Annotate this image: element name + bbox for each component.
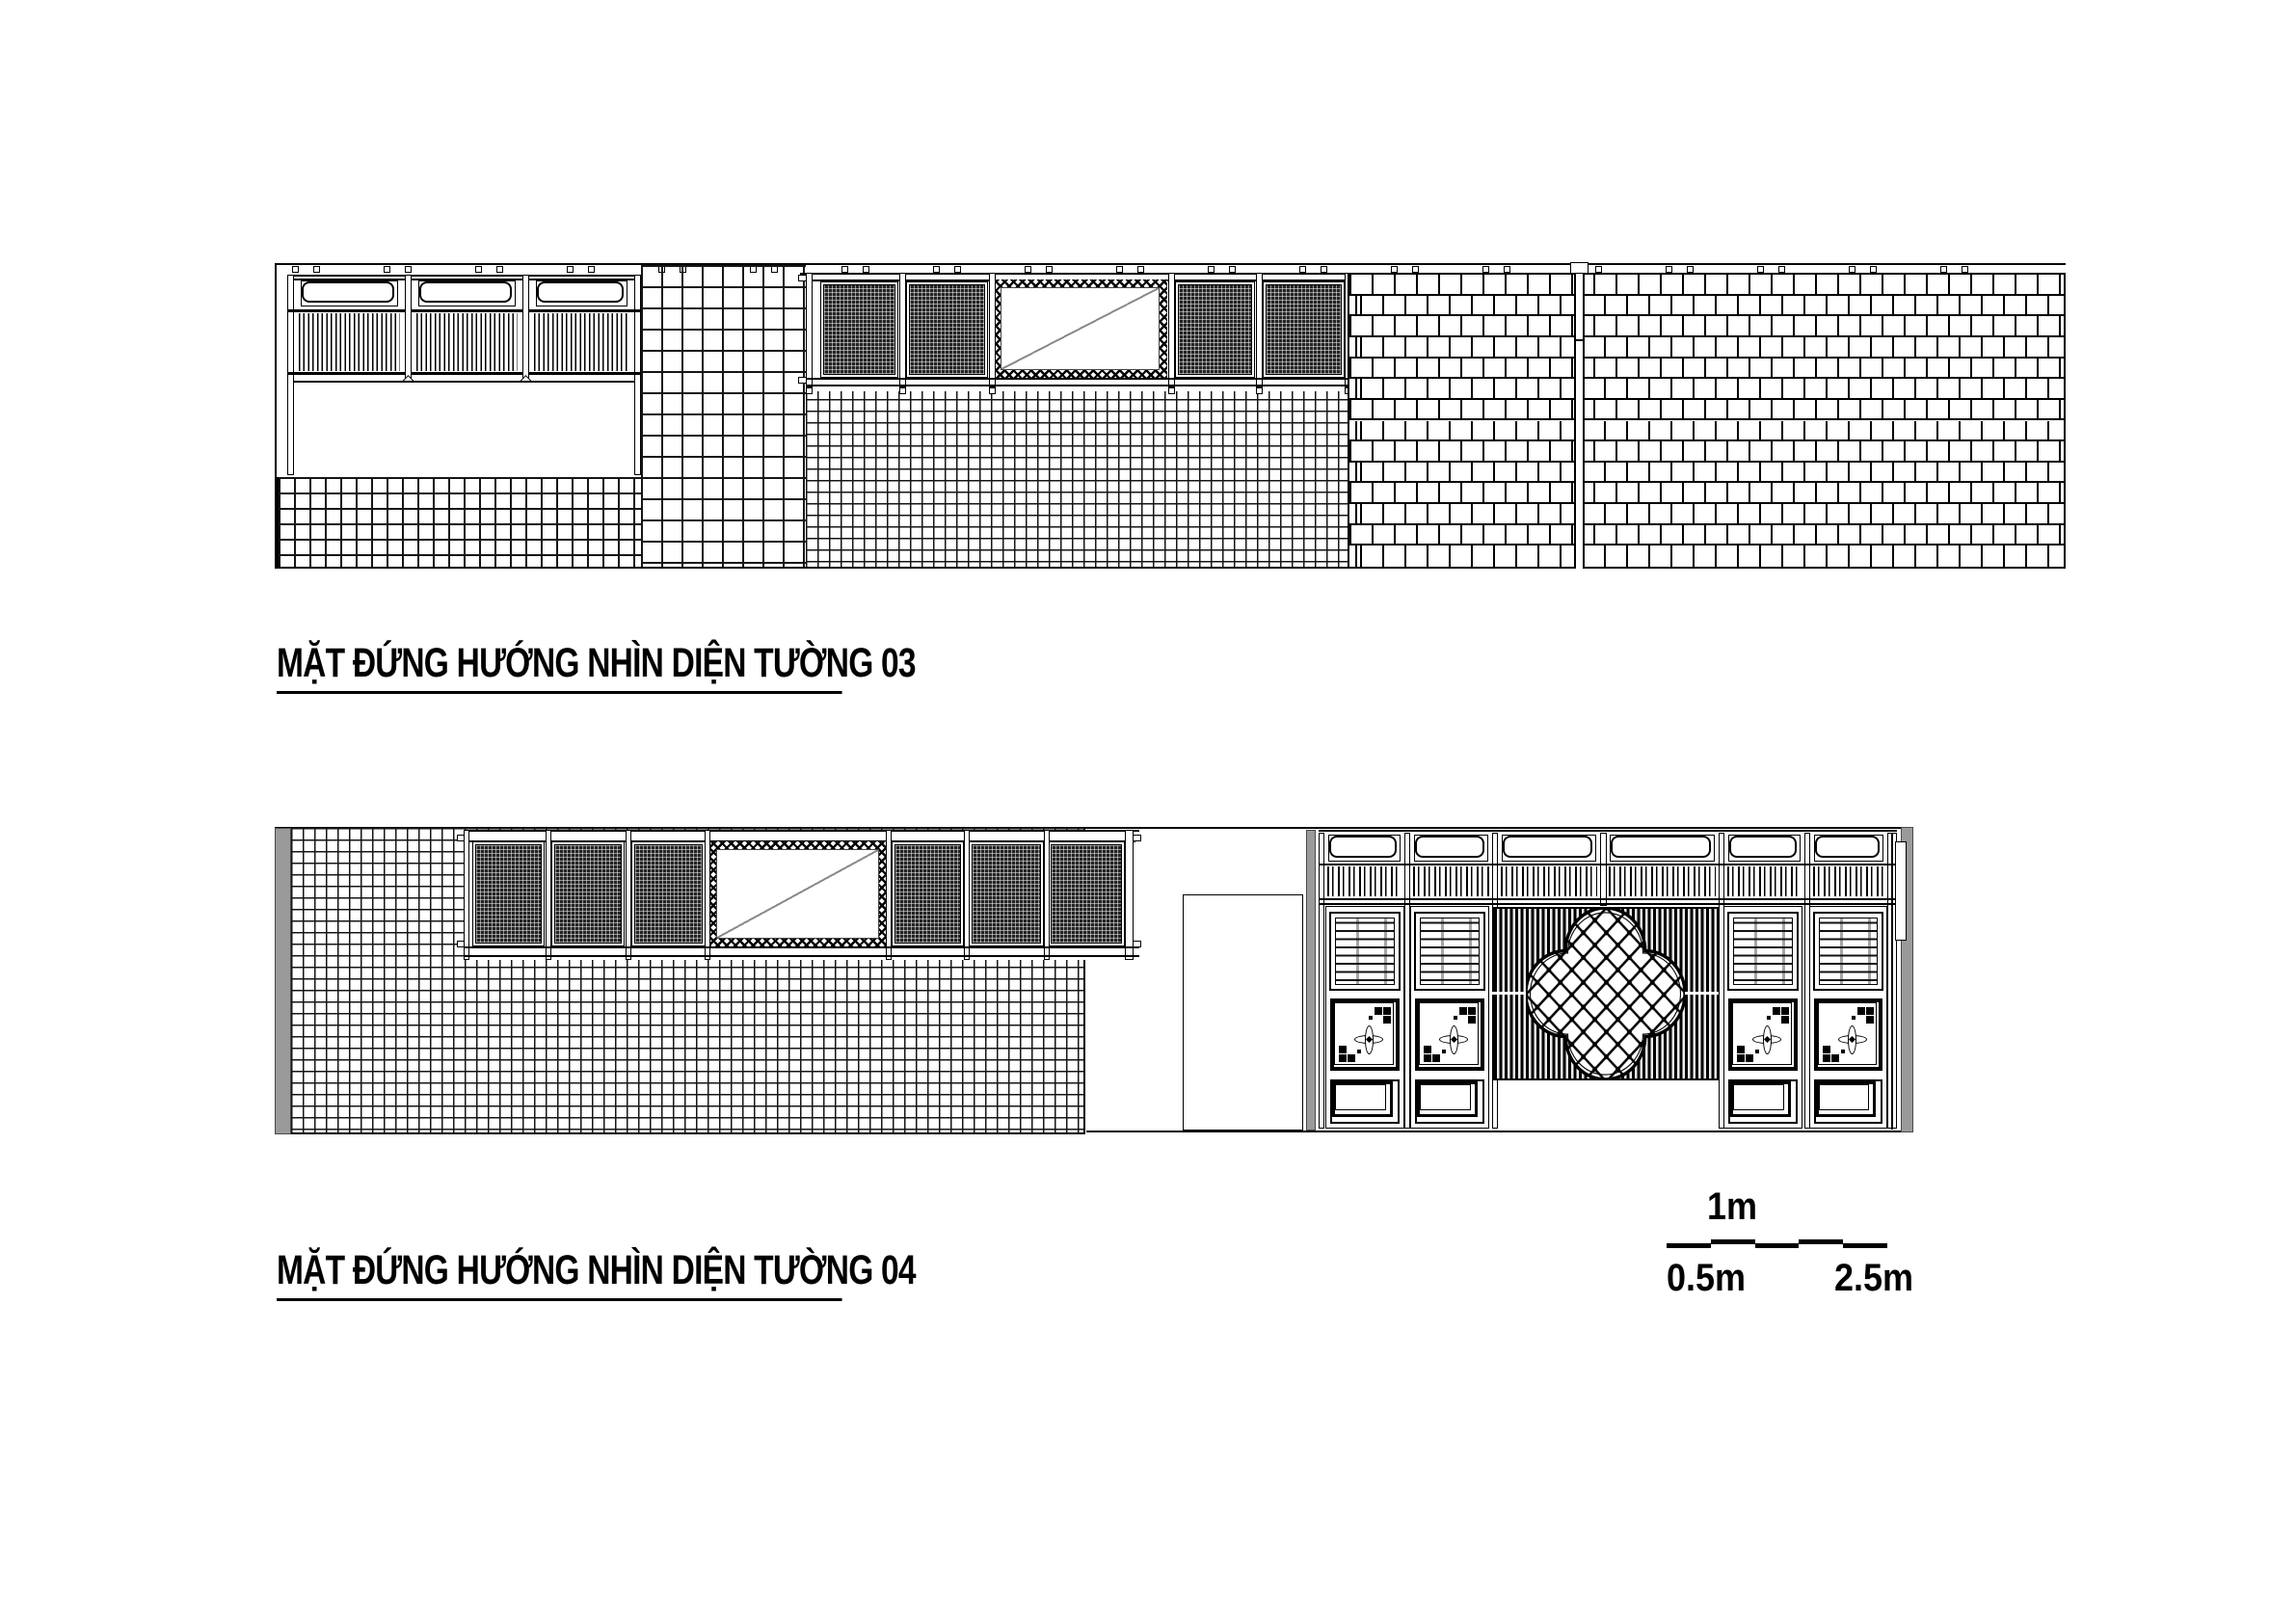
rail-fastener	[1849, 266, 1855, 273]
band-bottom-line	[806, 378, 1352, 380]
ornate-frame-right-inner	[1891, 834, 1893, 1130]
ornate-frame-left	[1319, 833, 1324, 1129]
transom-panel	[1814, 835, 1883, 862]
mesh-panel	[554, 844, 622, 944]
bottom-panel-core	[1819, 1084, 1869, 1110]
band-post	[1044, 830, 1050, 960]
slat-band	[534, 313, 629, 371]
tile-grid-medium	[641, 265, 806, 569]
brick-row	[1349, 525, 2064, 546]
ornate-line	[1319, 864, 1897, 865]
bottom-panel	[1415, 1079, 1484, 1124]
band-post	[1168, 273, 1175, 387]
rail-fastener	[1962, 266, 1968, 273]
rail-fastener	[567, 266, 574, 273]
bottom-panel-mid	[1730, 1081, 1791, 1117]
bottom-panel-core	[1733, 1084, 1784, 1110]
elevation-wall-03-title: MẶT ĐỨNG HƯỚNG NHÌN DIỆN TƯỜNG 03	[277, 640, 1001, 694]
bottom-panel-mid	[1332, 1081, 1393, 1117]
corner-step-ornament	[1737, 1054, 1745, 1062]
transom-panel	[536, 280, 627, 306]
brick-row	[1349, 379, 2064, 400]
pole	[1574, 274, 1585, 569]
elevation-wall-04-drawing	[0, 771, 2296, 1253]
rail-fastener	[954, 266, 961, 273]
mesh-panel-frame	[1263, 281, 1345, 378]
bottom-panel-mid	[1417, 1081, 1478, 1117]
band-bottom-line	[464, 946, 1139, 948]
transom-panel-inner	[302, 281, 394, 303]
transom-panel-inner	[1729, 836, 1797, 858]
band-post-foot	[899, 387, 906, 394]
louver-panel	[1414, 912, 1485, 991]
band-end-tab	[798, 275, 807, 281]
band-post-foot	[806, 387, 813, 394]
transom-panel	[1610, 835, 1715, 862]
brick-row	[1349, 441, 2064, 463]
floral-panel	[1814, 998, 1882, 1071]
band-post	[1256, 273, 1263, 387]
corner-step-ornament	[1468, 1007, 1476, 1015]
band-post	[886, 830, 892, 960]
corner-step-ornament	[1424, 1054, 1431, 1062]
spindle-band	[1813, 866, 1884, 896]
pole-joint	[1574, 339, 1585, 341]
rail-fastener	[1870, 266, 1877, 273]
rail-fastener	[496, 266, 503, 273]
mesh-panel	[1266, 284, 1342, 375]
elevation-wall-04-title: MẶT ĐỨNG HƯỚNG NHÌN DIỆN TƯỜNG 04	[277, 1247, 1001, 1301]
top-rail-line	[275, 263, 2066, 265]
window-glass	[1001, 287, 1160, 370]
rail-fastener	[1687, 266, 1694, 273]
ornate-line	[1319, 898, 1897, 900]
rail-fastener	[863, 266, 869, 273]
brick-row	[1349, 316, 2064, 337]
transom-panel-inner	[537, 281, 624, 303]
scale-segment	[1711, 1239, 1755, 1244]
structure-post	[634, 275, 641, 475]
brick-row	[1349, 463, 2064, 484]
spindle-band	[1413, 866, 1489, 896]
mesh-panel	[1178, 284, 1252, 375]
louver-panel	[1727, 912, 1799, 991]
slat-rail	[287, 309, 641, 312]
brick-row	[1349, 483, 2064, 504]
rail-fastener	[588, 266, 595, 273]
scale-label-1m: 1m	[1707, 1185, 1757, 1229]
bottom-panel-mid	[1816, 1081, 1876, 1117]
rail-fastener	[475, 266, 482, 273]
brick-row	[1349, 421, 2064, 442]
mesh-panel	[909, 284, 985, 375]
transom-panel-inner	[1503, 836, 1592, 858]
floral-panel	[1415, 998, 1484, 1071]
brick-row	[1349, 359, 2064, 380]
transom-panel-inner	[1611, 836, 1711, 858]
corner-step-ornament	[1823, 1054, 1830, 1062]
mesh-panel-frame	[820, 281, 898, 378]
slat-rail	[287, 372, 641, 375]
spindle-band	[1727, 866, 1802, 896]
scale-bar: 1m 0.5m 2.5m	[1667, 1185, 1956, 1301]
bottom-panel	[1814, 1079, 1882, 1124]
structure-top-line	[287, 275, 641, 277]
tile-grid-coarse	[277, 477, 641, 569]
structure-post	[405, 275, 412, 381]
rail-fastener	[1299, 266, 1306, 273]
rail-fastener	[1137, 266, 1144, 273]
brick-row	[1349, 400, 2064, 421]
elevation-wall-04-title-text: MẶT ĐỨNG HƯỚNG NHÌN DIỆN TƯỜNG 04	[277, 1247, 842, 1301]
transom-panel-inner	[1815, 836, 1880, 858]
band-post	[989, 273, 996, 387]
mesh-panel	[475, 844, 542, 944]
pole-cap	[1570, 262, 1589, 274]
mesh-panel	[634, 844, 703, 944]
ornate-stile-short	[1600, 833, 1607, 906]
rail-fastener	[405, 266, 412, 273]
rail-fastener	[1412, 266, 1419, 273]
band-post	[806, 273, 813, 387]
tile-grid-fine	[806, 387, 1348, 569]
transom-panel	[418, 280, 516, 306]
rail-fastener	[841, 266, 848, 273]
drawing-sheet: MẶT ĐỨNG HƯỚNG NHÌN DIỆN TƯỜNG 03 MẶT ĐỨ…	[0, 0, 2296, 1623]
band-rail-line	[464, 830, 1139, 832]
rail-fastener	[1757, 266, 1764, 273]
slat-band	[416, 313, 518, 371]
mesh-panel-frame	[472, 841, 545, 946]
transom-panel	[301, 280, 398, 306]
band-post-foot	[1256, 387, 1263, 394]
mesh-panel	[823, 284, 895, 375]
rail-fastener	[1940, 266, 1947, 273]
rail-fastener	[313, 266, 320, 273]
floral-panel	[1330, 998, 1400, 1071]
rail-fastener	[1504, 266, 1510, 273]
quatrefoil-panel	[1526, 908, 1685, 1079]
ornate-line	[1319, 903, 1897, 905]
band-bottom-line	[464, 955, 1139, 957]
band-end-tab	[1133, 835, 1141, 841]
rail-fastener	[1208, 266, 1215, 273]
corner-step-ornament	[1339, 1054, 1347, 1062]
mesh-panel	[1051, 844, 1122, 944]
scale-label-05m: 0.5m	[1667, 1257, 1746, 1300]
plain-block	[1183, 894, 1303, 1131]
scale-segment	[1667, 1243, 1711, 1248]
band-rail-line	[800, 273, 1359, 275]
slat-band	[299, 313, 400, 371]
mesh-panel-frame	[1175, 281, 1255, 378]
rail-fastener	[1391, 266, 1398, 273]
louver-panel	[1813, 912, 1883, 991]
spindle-band	[1609, 866, 1716, 896]
band-bottom-line	[806, 385, 1352, 386]
transom-panel-inner	[419, 281, 512, 303]
band-post-foot	[989, 387, 996, 394]
scale-segment	[1755, 1243, 1800, 1248]
window-frame	[708, 841, 887, 946]
band-post	[626, 830, 631, 960]
brick-row	[1349, 296, 2064, 317]
transom-panel-inner	[1329, 836, 1397, 858]
gray-pilaster-mid	[1306, 830, 1316, 1131]
scale-segment	[1799, 1239, 1843, 1244]
scale-segment	[1843, 1243, 1887, 1248]
corner-step-ornament	[1383, 1007, 1391, 1015]
rail-fastener	[1778, 266, 1785, 273]
structure-post	[287, 275, 294, 475]
mesh-panel	[972, 844, 1041, 944]
band-end-tab	[457, 835, 465, 841]
rail-fastener	[1595, 266, 1602, 273]
brick-row	[1349, 337, 2064, 359]
transom-panel	[1502, 835, 1596, 862]
window-glass	[716, 849, 879, 939]
mesh-panel	[894, 844, 961, 944]
rail-fastener	[1116, 266, 1123, 273]
brick-wall	[1348, 273, 2066, 569]
mesh-panel-frame	[631, 841, 706, 946]
mesh-panel-frame	[969, 841, 1044, 946]
transom-panel	[1328, 835, 1401, 862]
quatrefoil-lattice	[1526, 908, 1685, 1079]
rail-fastener	[1321, 266, 1327, 273]
transom-panel-inner	[1415, 836, 1484, 858]
rail-fastener	[933, 266, 940, 273]
floral-panel	[1728, 998, 1798, 1071]
bottom-panel-core	[1335, 1084, 1386, 1110]
gray-pilaster-left	[275, 828, 291, 1134]
rail-fastener	[1482, 266, 1489, 273]
window-frame	[993, 279, 1167, 378]
transom-panel	[1728, 835, 1801, 862]
mesh-panel-frame	[551, 841, 625, 946]
mesh-panel-frame	[906, 281, 988, 378]
corner-step-ornament	[1866, 1007, 1874, 1015]
base-line	[1086, 1131, 1913, 1132]
mesh-panel-frame	[892, 841, 964, 946]
brick-row	[1349, 275, 2064, 296]
corner-step-ornament	[1781, 1007, 1789, 1015]
band-post	[964, 830, 970, 960]
transom-panel	[1414, 835, 1488, 862]
rail-fastener	[292, 266, 299, 273]
rail-fastener	[384, 266, 390, 273]
brick-row	[1349, 504, 2064, 525]
bottom-panel-core	[1420, 1084, 1471, 1110]
band-post	[705, 830, 710, 960]
rail-fastener	[1046, 266, 1053, 273]
rail-fastener	[1666, 266, 1672, 273]
louver-panel	[1329, 912, 1401, 991]
mesh-panel-frame	[1048, 841, 1125, 946]
brick-row	[1349, 545, 2064, 567]
band-post-foot	[1168, 387, 1175, 394]
band-post	[899, 273, 906, 387]
bottom-panel	[1728, 1079, 1798, 1124]
band-post	[546, 830, 551, 960]
rail-fastener	[1025, 266, 1031, 273]
rail-fastener	[1229, 266, 1236, 273]
spindle-band	[1327, 866, 1402, 896]
structure-post	[522, 275, 529, 381]
bottom-panel	[1330, 1079, 1400, 1124]
mirror-glass	[294, 381, 634, 475]
spindle-band	[1501, 866, 1597, 896]
ornate-top-line	[1319, 830, 1897, 832]
scale-bar-segments	[1667, 1239, 1887, 1249]
elevation-wall-03-title-text: MẶT ĐỨNG HƯỚNG NHÌN DIỆN TƯỜNG 03	[277, 640, 842, 694]
pilaster-tab	[1895, 841, 1907, 941]
scale-label-25m: 2.5m	[1834, 1257, 1913, 1300]
